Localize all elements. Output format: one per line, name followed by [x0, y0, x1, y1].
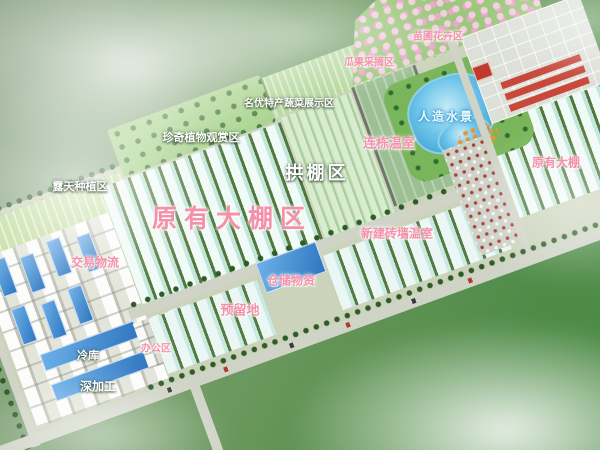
zone-label-new-brick-greenhouse: 新建砖墙温室 [361, 225, 433, 242]
zone-label-existing-greenhouse: 原有大棚区 [152, 199, 312, 235]
zone-label-cold-storage: 冷库 [77, 347, 99, 363]
zone-label-rare-plants-viewing: 珍奇植物观赏区 [163, 129, 240, 145]
zone-label-open-air-planting: 露天种植区 [53, 178, 108, 194]
zone-label-fruit-picking: 瓜果采摘区 [344, 54, 394, 69]
zone-label-deep-processing: 深加工 [80, 378, 116, 395]
zone-label-trade-logistics: 交易物流 [71, 254, 119, 271]
zone-label-multi-span-greenhouse: 连栋温室 [363, 133, 415, 152]
zone-label-arch-shed: 拱棚区 [286, 159, 349, 185]
zone-label-nursery-flowers: 苗圃花卉区 [413, 28, 463, 43]
zone-label-storage-materials: 仓储物资 [267, 272, 315, 289]
zone-label-office: 办公区 [141, 340, 171, 355]
zone-label-existing-greenhouse-east: 原有大棚 [532, 154, 580, 171]
zone-label-artificial-water: 人造水景 [418, 108, 474, 125]
site-plan-rendering: 露天种植区 珍奇植物观赏区 名优特产蔬菜展示区 瓜果采摘区 苗圃花卉区 人造水景… [0, 0, 600, 450]
south-access-road [188, 380, 235, 450]
zone-label-vegetable-display: 名优特产蔬菜展示区 [244, 95, 334, 110]
zone-label-reserved-land: 预留地 [220, 300, 259, 319]
